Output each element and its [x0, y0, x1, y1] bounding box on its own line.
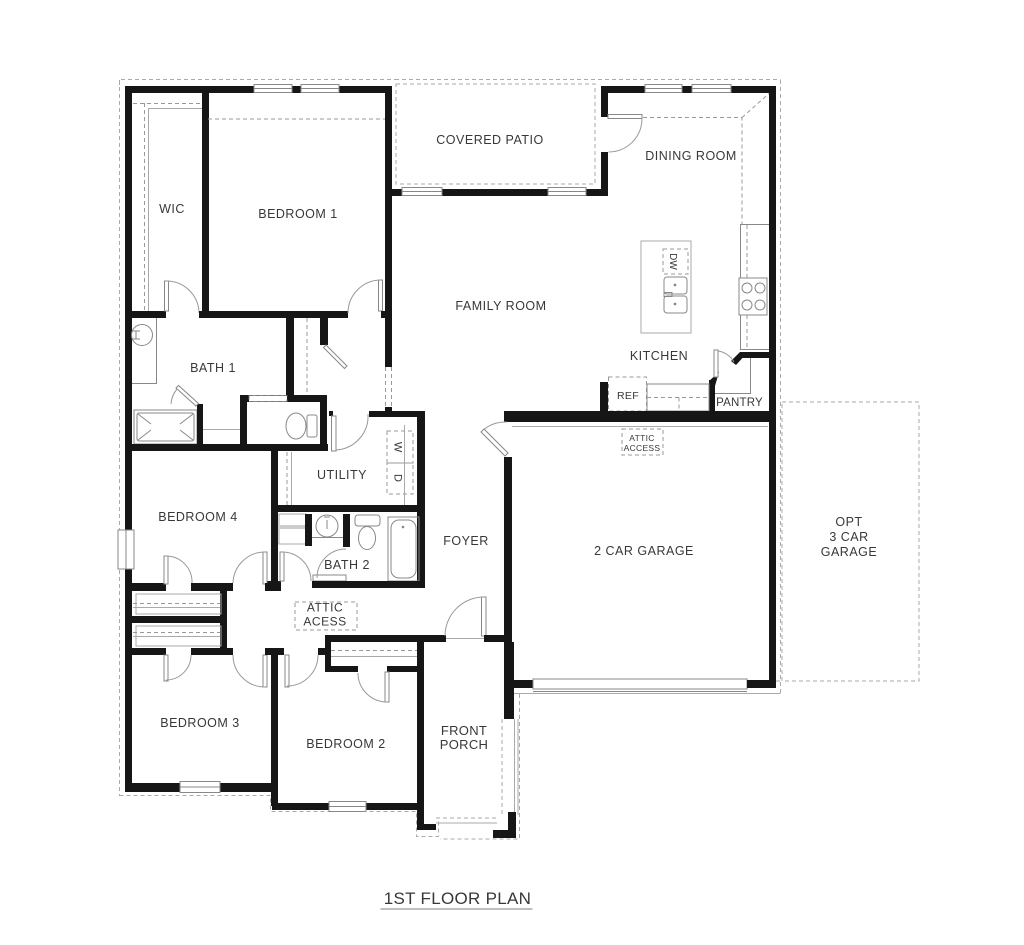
svg-text:OPT: OPT	[835, 515, 862, 529]
svg-text:1ST FLOOR PLAN: 1ST FLOOR PLAN	[384, 889, 532, 908]
svg-text:GARAGE: GARAGE	[821, 545, 878, 559]
svg-text:ATTIC: ATTIC	[629, 433, 654, 443]
svg-text:W: W	[392, 442, 404, 453]
svg-text:BEDROOM 3: BEDROOM 3	[160, 716, 240, 730]
svg-text:ATTIC: ATTIC	[307, 601, 343, 615]
svg-text:D: D	[392, 474, 404, 482]
svg-text:FOYER: FOYER	[443, 534, 489, 548]
svg-text:COVERED PATIO: COVERED PATIO	[436, 133, 543, 147]
svg-text:BATH 1: BATH 1	[190, 361, 236, 375]
svg-text:BEDROOM 1: BEDROOM 1	[258, 207, 338, 221]
svg-text:DINING ROOM: DINING ROOM	[645, 149, 737, 163]
svg-text:REF: REF	[617, 390, 639, 402]
svg-text:3 CAR: 3 CAR	[829, 530, 868, 544]
svg-text:BATH 2: BATH 2	[324, 558, 370, 572]
svg-text:FRONT: FRONT	[441, 723, 487, 738]
svg-text:FAMILY ROOM: FAMILY ROOM	[455, 299, 546, 313]
svg-text:WIC: WIC	[159, 202, 185, 216]
svg-text:KITCHEN: KITCHEN	[630, 349, 688, 363]
svg-text:BEDROOM 2: BEDROOM 2	[306, 737, 386, 751]
svg-text:UTILITY: UTILITY	[317, 468, 367, 482]
svg-text:2 CAR GARAGE: 2 CAR GARAGE	[594, 544, 694, 558]
svg-text:ACESS: ACESS	[303, 615, 346, 629]
svg-text:BEDROOM 4: BEDROOM 4	[158, 510, 238, 524]
svg-text:ACCESS: ACCESS	[624, 443, 661, 453]
svg-text:PANTRY: PANTRY	[716, 397, 763, 409]
svg-text:PORCH: PORCH	[440, 737, 488, 752]
svg-text:DW: DW	[667, 253, 678, 270]
